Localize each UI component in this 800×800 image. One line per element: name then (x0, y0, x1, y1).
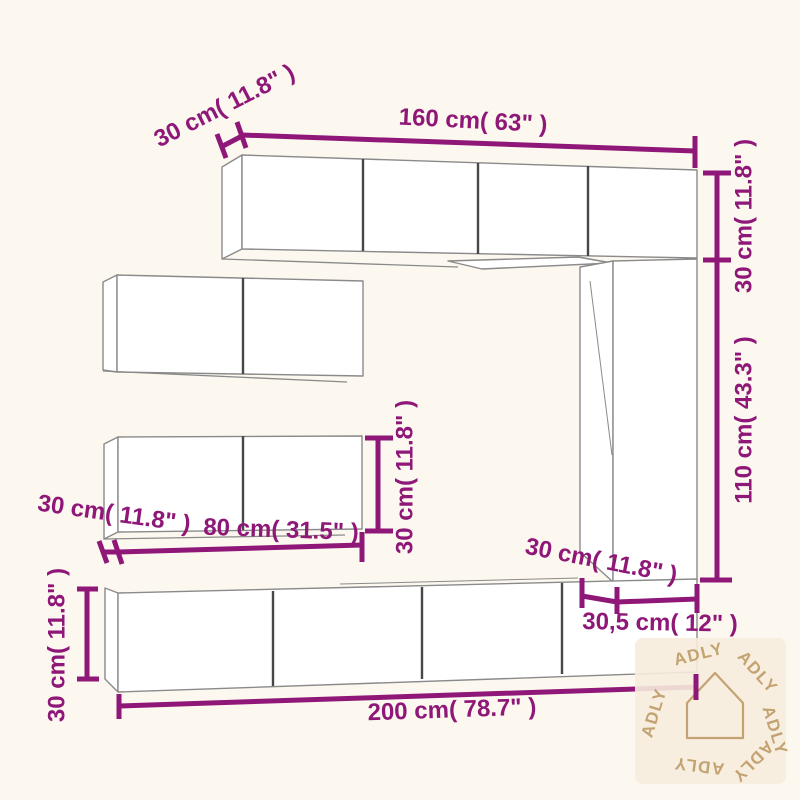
dimension-bottom-height: 30 cm( 11.8" ) (43, 568, 99, 722)
dimension-label: 80 cm( 31.5" ) (203, 514, 359, 546)
dimension-line (617, 599, 697, 602)
dimension-label: 110 cm( 43.3" ) (730, 336, 757, 503)
wall-cabinet-upper-left (103, 275, 363, 382)
dimension-label: 30 cm( 11.8" ) (43, 568, 70, 722)
dimension-line (221, 136, 242, 147)
dimension-label: 30 cm( 11.8" ) (391, 400, 418, 554)
furniture-dimension-diagram: 30 cm( 11.8" ) 160 cm( 63" ) 30 cm( 11.8… (0, 0, 800, 800)
cabinet-side-panel (105, 588, 118, 692)
dimension-middle-cabinet-height: 30 cm( 11.8" ) (365, 400, 418, 554)
dimension-line (118, 545, 362, 552)
dimension-bottom-width: 200 cm( 78.7" ) (119, 687, 696, 726)
top-wall-cabinet (222, 155, 697, 267)
cabinet-bottom-slab-edge (222, 259, 458, 267)
cabinet-front-face (117, 275, 363, 376)
tall-side-cabinet (448, 257, 697, 582)
dimension-label: 200 cm( 78.7" ) (367, 693, 537, 726)
cabinet-side-panel (222, 155, 242, 259)
dimension-line (242, 135, 695, 151)
cabinet-front-face (613, 259, 697, 582)
dimension-label: 30 cm( 11.8" ) (730, 139, 757, 293)
dimension-right-upper-height: 30 cm( 11.8" ) (703, 139, 757, 293)
diagram-canvas: 30 cm( 11.8" ) 160 cm( 63" ) 30 cm( 11.8… (0, 0, 800, 800)
dimension-label: 30 cm( 11.8" ) (150, 59, 300, 153)
cabinet-side-panel (103, 275, 117, 372)
watermark: ADLY ADLY ADLY ADLY ADLY ADLY (635, 638, 791, 786)
dimension-label: 30,5 cm( 12" ) (582, 608, 738, 638)
dimension-label: 160 cm( 63" ) (398, 103, 548, 138)
dimension-right-column-height: 110 cm( 43.3" ) (700, 260, 757, 580)
cabinet-front-face (242, 155, 697, 258)
dimension-top-depth: 30 cm( 11.8" ) (150, 59, 300, 158)
cabinet-front-face (118, 579, 697, 692)
